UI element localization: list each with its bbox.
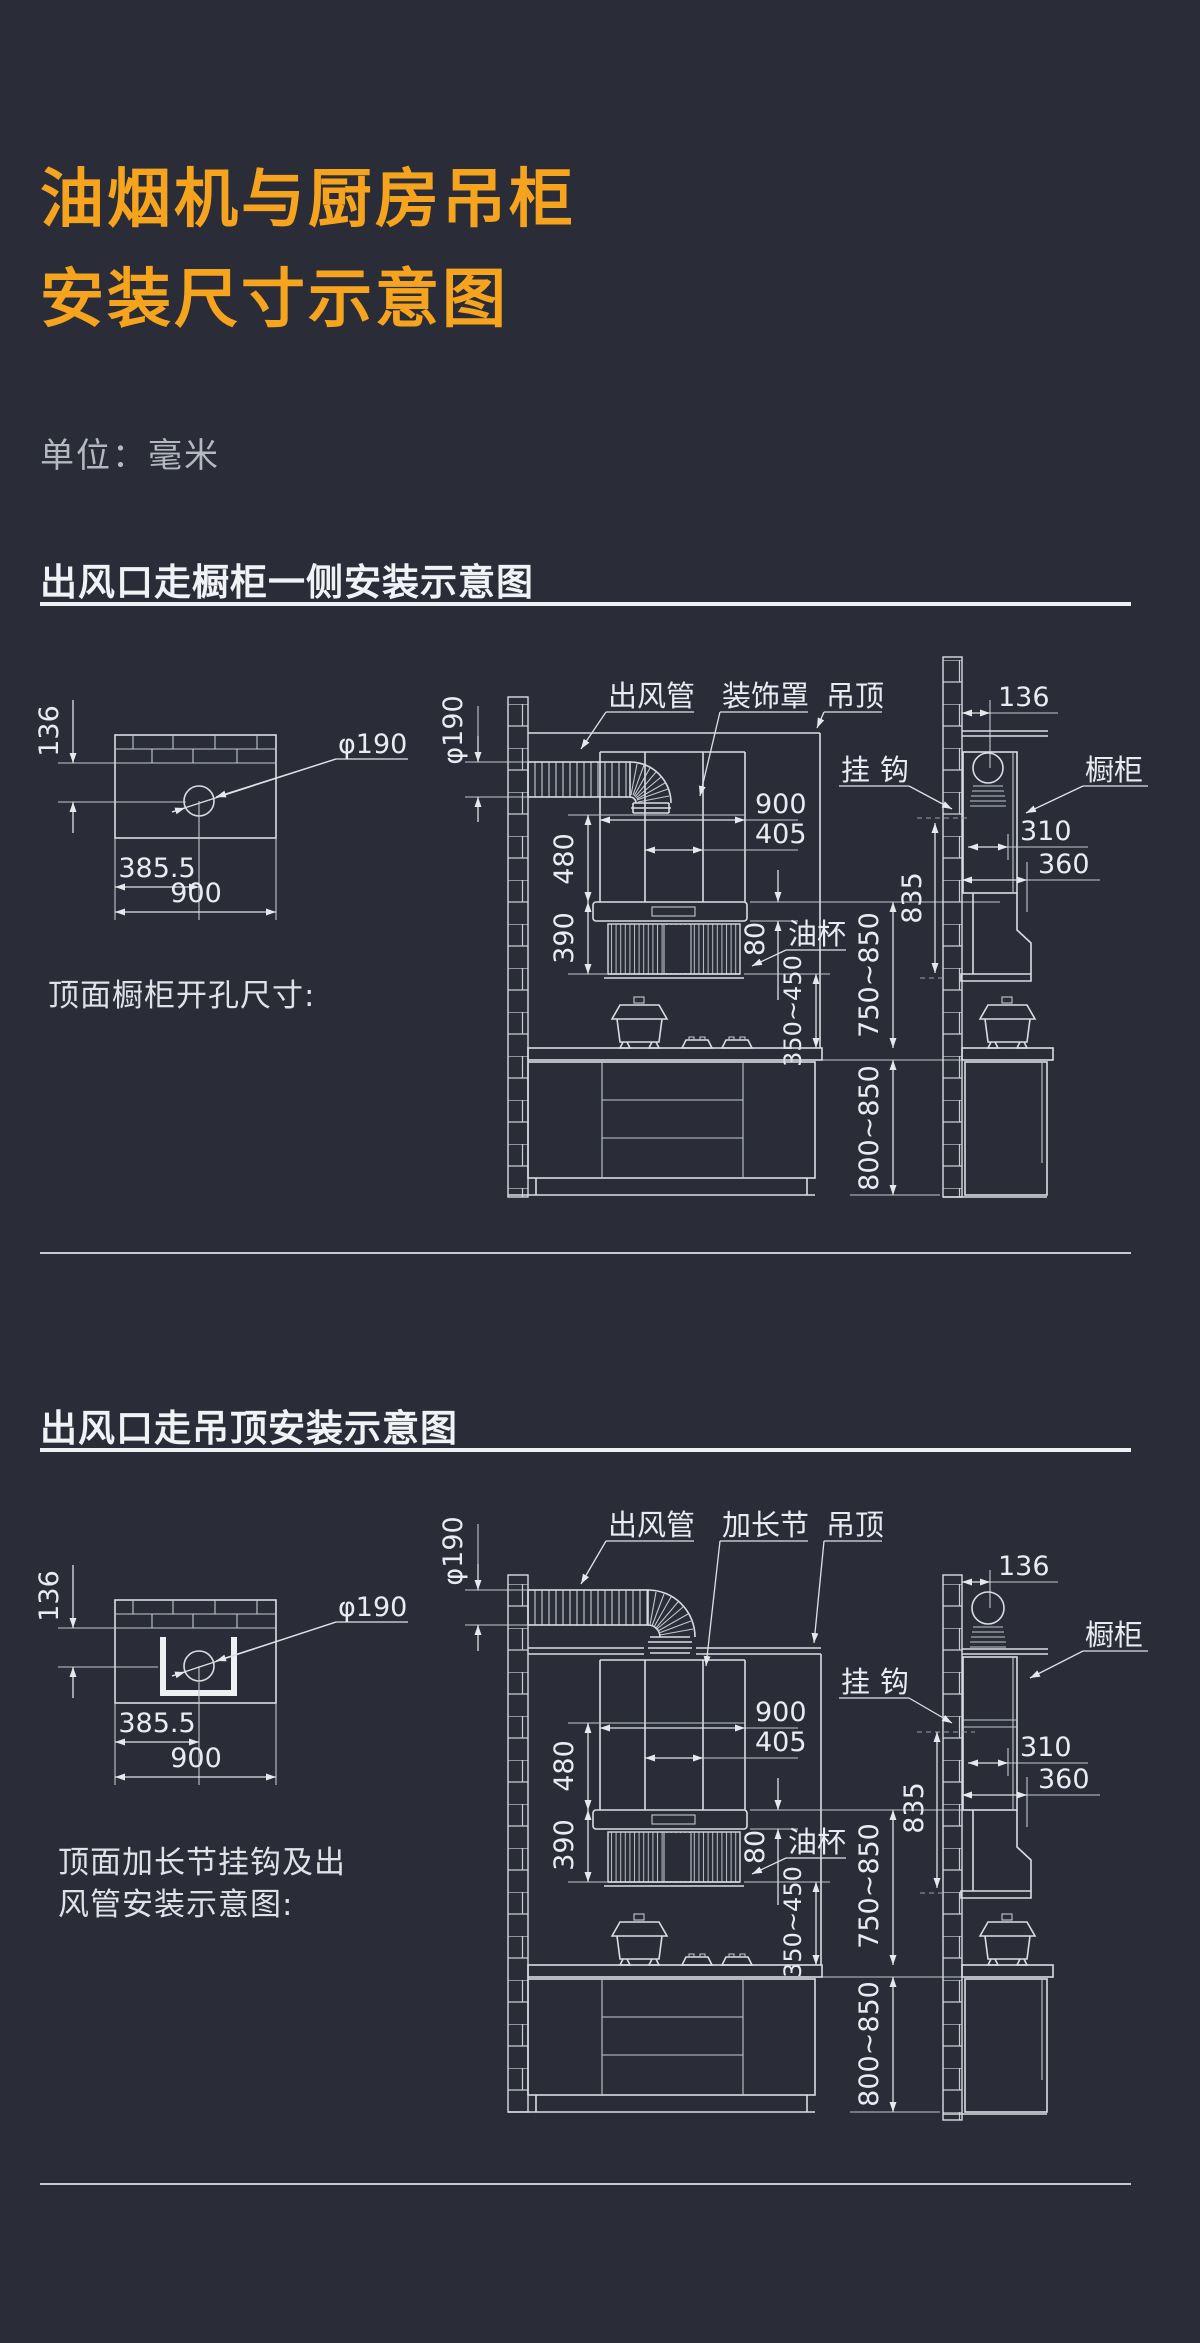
s2-dim-hole-x: 385.5	[118, 1708, 195, 1739]
s1-duct-section	[973, 753, 1003, 783]
s1-dim-duct-dia: φ190	[438, 695, 469, 764]
s2-dim-duct-dia: φ190	[438, 1516, 469, 1585]
s1-dim-base: 800~850	[854, 1065, 885, 1191]
s2-dim-outlet-off: 405	[755, 1727, 807, 1758]
technical-drawing: 136 φ190 385.5 900 φ190	[0, 0, 1200, 2343]
s1-label-cabinet: 橱柜	[1085, 753, 1143, 787]
s1-dim-body-h: 390	[549, 912, 580, 964]
s2-hood	[568, 1660, 747, 1886]
s2-label-extension: 加长节	[722, 1508, 809, 1542]
s1-label-cover: 装饰罩	[722, 679, 809, 713]
s2-dim-hole-dia: φ190	[338, 1592, 407, 1623]
s1-dim-depth2: 360	[1038, 849, 1090, 880]
s1-dim-cup: 80	[740, 922, 771, 956]
section1-drawing: 136 φ190 385.5 900 φ190	[34, 657, 1148, 1197]
s1-dim-wall-off: 136	[998, 682, 1050, 713]
page: 油烟机与厨房吊柜 安装尺寸示意图 单位：毫米 出风口走橱柜一侧安装示意图 顶面橱…	[0, 0, 1200, 2343]
s1-dim-louver-gap: 350~450	[779, 955, 807, 1067]
s2-label-cabinet: 橱柜	[1085, 1618, 1143, 1652]
s1-hood-bracket	[961, 893, 1031, 981]
s1-label-oil-cup: 油杯	[788, 917, 846, 951]
s1-duct	[528, 762, 630, 797]
s1-wall	[508, 697, 528, 1197]
s2-dim-louver-gap: 350~450	[779, 1866, 807, 1978]
s2-hood-bracket	[961, 1810, 1031, 1898]
s1-dim-outlet-off: 405	[755, 819, 807, 850]
s2-dim-wall-off: 136	[998, 1551, 1050, 1582]
s2-dim-base: 800~850	[854, 1981, 885, 2107]
s2-dim-hood-w: 900	[755, 1697, 807, 1728]
s2-label-hook: 挂钩	[841, 1665, 919, 1699]
section2-drawing: 136 φ190 385.5 900 φ190	[34, 1508, 1148, 2120]
s2-label-duct: 出风管	[608, 1508, 695, 1542]
s1-side-wall	[943, 657, 962, 1197]
s2-cabinet-top-panel	[115, 1600, 276, 1703]
s2-dim-depth2: 360	[1038, 1764, 1090, 1795]
s1-base-cabinet	[508, 997, 822, 1195]
s1-dim-chimney-h: 480	[549, 833, 580, 885]
s1-dim-hole-dia: φ190	[338, 729, 407, 760]
s2-duct	[528, 1590, 648, 1625]
s2-dim-cab-width: 900	[170, 1743, 222, 1774]
s2-label-ceiling: 吊顶	[826, 1508, 884, 1542]
s1-dim-cab-width: 900	[170, 878, 222, 909]
s1-dim-hook-h: 835	[897, 872, 928, 924]
s1-dim-hang: 750~850	[854, 912, 885, 1038]
s2-dim-hook-h: 835	[899, 1782, 930, 1834]
s1-dim-hole-offset: 136	[34, 705, 65, 757]
s2-wall-cabinet	[963, 1657, 1017, 1810]
s2-side-view-diagram: 136 挂钩 835 310 360 橱柜	[839, 1551, 1148, 2120]
s2-dim-hang: 750~850	[854, 1823, 885, 1949]
s2-base-cabinet	[508, 1914, 822, 2112]
s2-wall	[508, 1575, 528, 2112]
s1-topview-diagram: 136 φ190 385.5 900	[34, 700, 408, 920]
s1-dim-depth1: 310	[1020, 816, 1072, 847]
s2-dim-body-h: 390	[549, 1819, 580, 1871]
s2-dim-hole-offset: 136	[34, 1570, 65, 1622]
s2-side-wall	[943, 1575, 962, 2120]
s1-side-view-diagram: 136 挂钩 835 310 360 橱柜	[839, 657, 1148, 1197]
s1-label-duct: 出风管	[608, 679, 695, 713]
s1-wall-cabinet	[963, 752, 1017, 893]
s2-dim-depth1: 310	[1020, 1732, 1072, 1763]
s2-dim-chimney-h: 480	[549, 1740, 580, 1792]
s1-dim-hood-w: 900	[755, 789, 807, 820]
s2-label-oil-cup: 油杯	[788, 1825, 846, 1859]
s2-dim-cup: 80	[740, 1830, 771, 1864]
s1-label-ceiling: 吊顶	[826, 679, 884, 713]
s2-duct-section	[972, 1592, 1004, 1624]
s1-label-hook: 挂钩	[841, 753, 919, 787]
s2-topview-diagram: 136 φ190 385.5 900	[34, 1565, 408, 1785]
